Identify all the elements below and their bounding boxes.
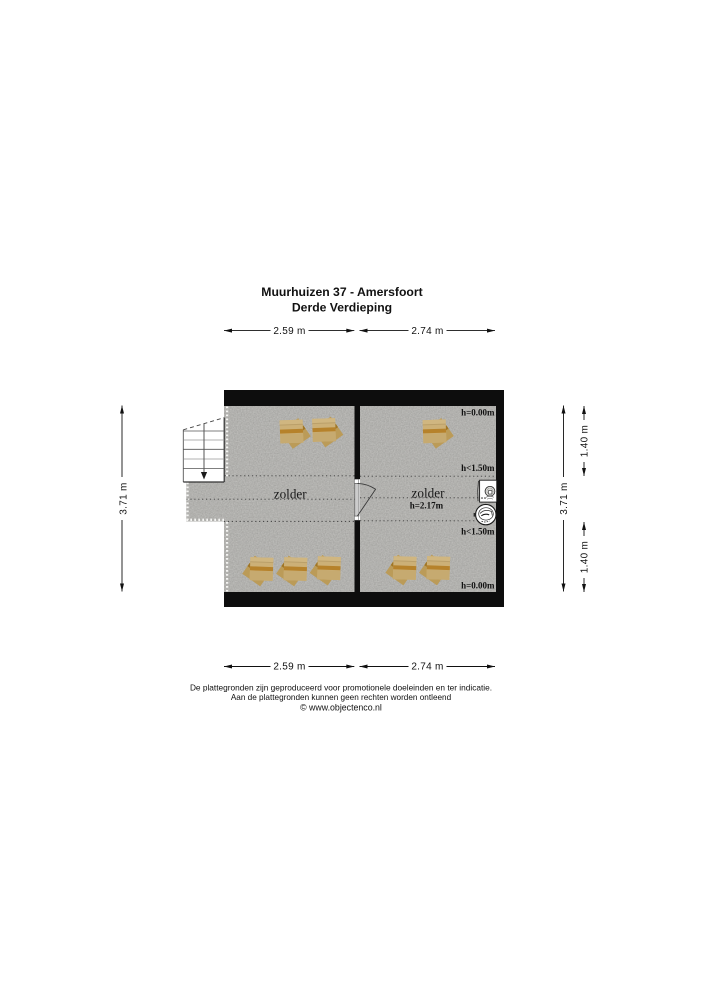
svg-text:zolder: zolder — [274, 486, 308, 501]
svg-text:h=0.00m: h=0.00m — [461, 408, 495, 418]
svg-text:h=0.00m: h=0.00m — [461, 580, 495, 590]
svg-text:2.74 m: 2.74 m — [411, 662, 443, 673]
svg-text:h<1.50m: h<1.50m — [461, 526, 495, 536]
svg-text:2.59 m: 2.59 m — [273, 326, 305, 337]
svg-text:2.59 m: 2.59 m — [273, 662, 305, 673]
svg-text:3.71 m: 3.71 m — [118, 482, 129, 514]
svg-text:3.71 m: 3.71 m — [559, 482, 570, 514]
svg-text:De plattegronden zijn geproduc: De plattegronden zijn geproduceerd voor … — [190, 683, 492, 693]
svg-text:h<1.50m: h<1.50m — [461, 463, 495, 473]
svg-text:1.40 m: 1.40 m — [579, 425, 590, 457]
svg-text:© www.objectenco.nl: © www.objectenco.nl — [300, 703, 382, 713]
svg-text:2.74 m: 2.74 m — [411, 326, 443, 337]
svg-text:1.40 m: 1.40 m — [579, 541, 590, 573]
svg-text:Derde Verdieping: Derde Verdieping — [292, 300, 392, 314]
svg-text:Muurhuizen 37 - Amersfoort: Muurhuizen 37 - Amersfoort — [261, 285, 422, 299]
svg-text:zolder: zolder — [412, 485, 446, 500]
svg-text:Aan de plattegronden kunnen ge: Aan de plattegronden kunnen geen rechten… — [231, 693, 452, 702]
svg-text:h=2.17m: h=2.17m — [410, 500, 444, 510]
